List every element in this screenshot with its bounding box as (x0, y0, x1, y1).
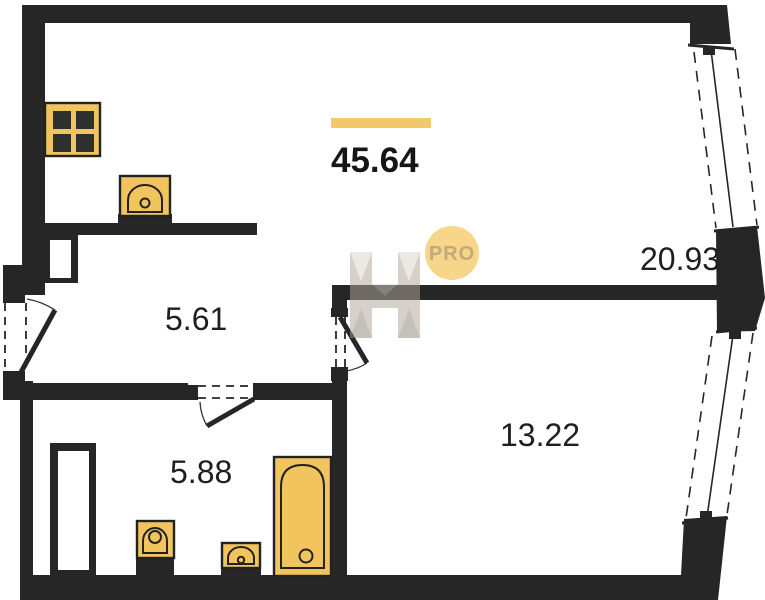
toilet-icon (136, 521, 174, 576)
kitchen-wall (45, 223, 257, 235)
area-label-bathroom: 5.88 (170, 454, 232, 490)
floor-plan-canvas: PRO 45.64 20.93 5.61 5.88 13.22 (0, 0, 765, 600)
area-label-bedroom: 13.22 (500, 417, 580, 453)
floor-plan: PRO 45.64 20.93 5.61 5.88 13.22 (0, 0, 765, 600)
stove-icon (45, 103, 100, 156)
total-area-accent-bar (331, 118, 431, 128)
bathtub-icon (274, 457, 331, 576)
area-label-hallway: 5.61 (165, 301, 227, 337)
entry-pier (3, 265, 27, 295)
pro-badge-label: PRO (429, 243, 475, 265)
pro-badge: PRO (425, 226, 479, 280)
area-label-living-kitchen: 20.93 (640, 241, 720, 277)
kitchen-sink-icon (118, 176, 172, 224)
total-area-label: 45.64 (331, 141, 419, 180)
wash-basin-icon (221, 543, 261, 576)
